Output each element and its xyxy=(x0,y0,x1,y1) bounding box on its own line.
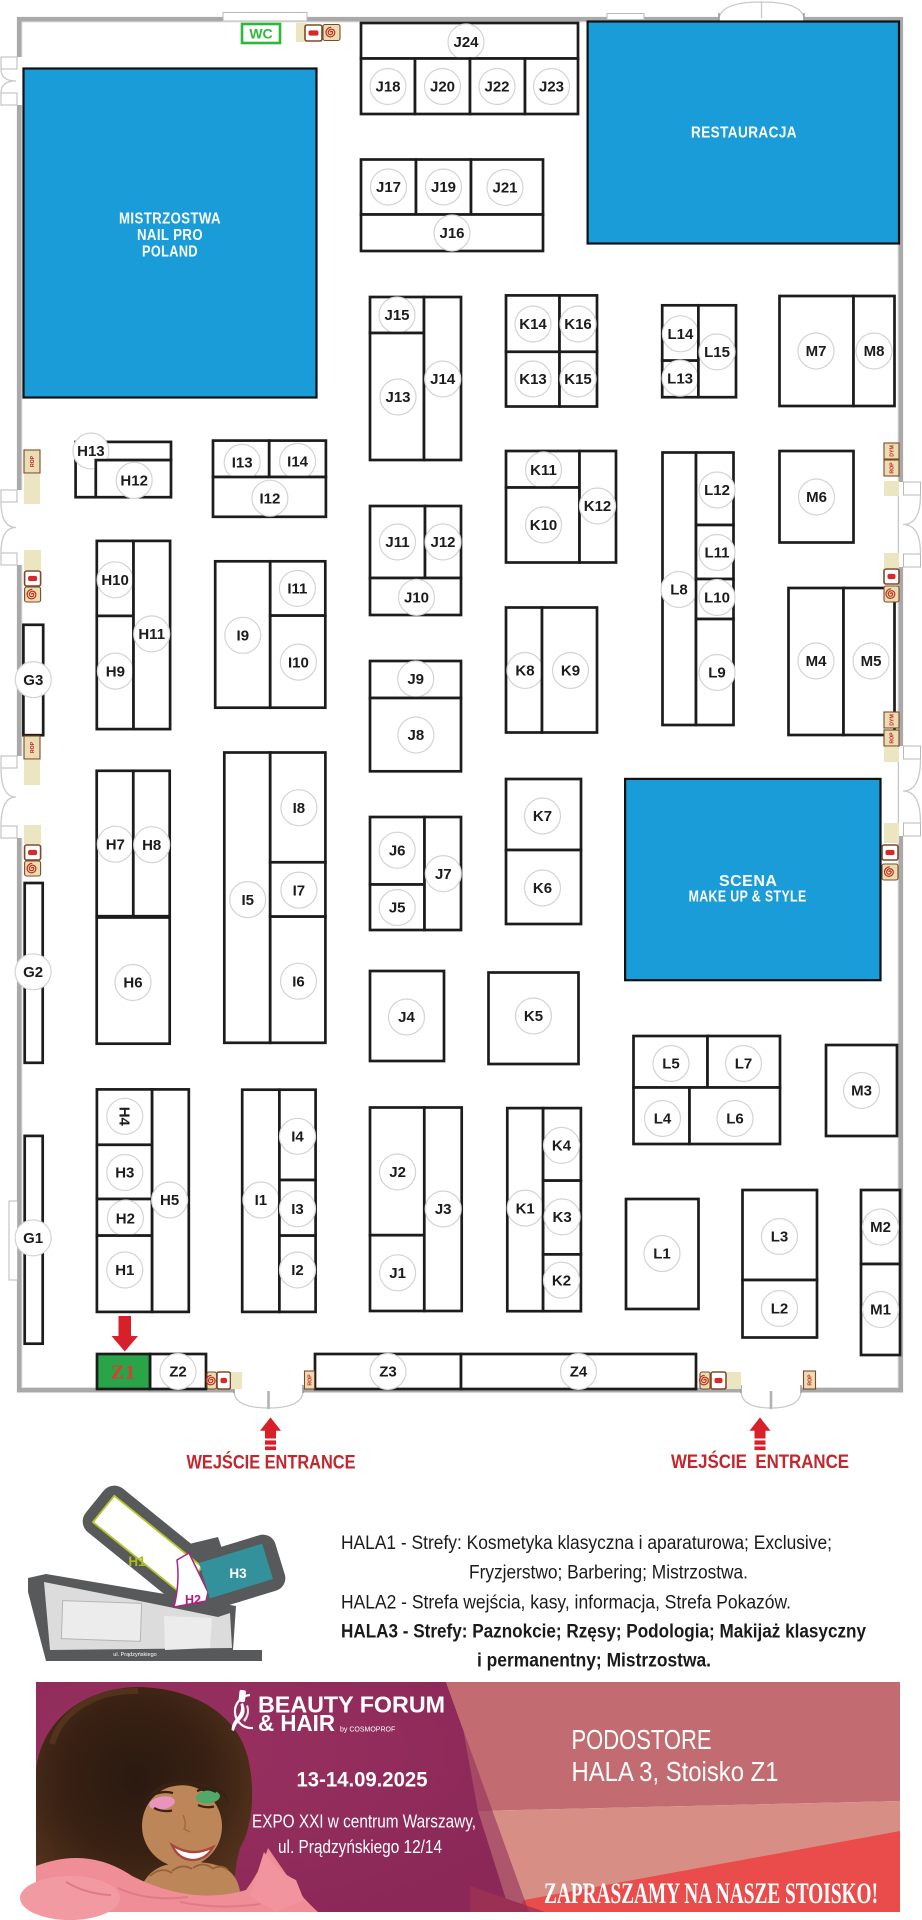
svg-text:H8: H8 xyxy=(142,837,161,854)
svg-text:K16: K16 xyxy=(564,316,592,333)
svg-text:K12: K12 xyxy=(584,498,612,515)
svg-text:HALA1 - Strefy: Kosmetyka klas: HALA1 - Strefy: Kosmetyka klasyczna i ap… xyxy=(341,1533,832,1554)
svg-text:I7: I7 xyxy=(293,882,306,899)
svg-text:HALA3 - Strefy: Paznokcie; Rzę: HALA3 - Strefy: Paznokcie; Rzęsy; Podolo… xyxy=(341,1622,866,1643)
svg-text:J13: J13 xyxy=(385,389,410,406)
svg-text:Z4: Z4 xyxy=(570,1364,588,1381)
svg-text:H6: H6 xyxy=(123,975,142,992)
svg-text:I3: I3 xyxy=(291,1201,304,1218)
svg-text:G3: G3 xyxy=(23,672,43,689)
svg-text:H1: H1 xyxy=(128,1554,146,1569)
svg-text:J15: J15 xyxy=(384,307,409,324)
svg-text:H9: H9 xyxy=(106,663,125,680)
svg-text:M4: M4 xyxy=(806,653,827,670)
svg-text:J24: J24 xyxy=(453,34,479,51)
svg-text:ZAPRASZAMY NA NASZE STOISKO!: ZAPRASZAMY NA NASZE STOISKO! xyxy=(544,1877,878,1910)
svg-text:Z2: Z2 xyxy=(169,1364,187,1381)
svg-text:HALA 3, Stoisko Z1: HALA 3, Stoisko Z1 xyxy=(572,1756,779,1787)
svg-text:ul. Prądzyńskiego: ul. Prądzyńskiego xyxy=(113,1652,156,1658)
svg-text:L4: L4 xyxy=(654,1111,672,1128)
svg-text:J5: J5 xyxy=(389,900,406,917)
svg-text:H11: H11 xyxy=(138,626,165,643)
svg-text:K14: K14 xyxy=(519,316,547,333)
svg-text:J3: J3 xyxy=(435,1201,452,1218)
svg-text:SCENA: SCENA xyxy=(719,873,778,890)
svg-text:I13: I13 xyxy=(232,455,253,472)
svg-text:13-14.09.2025: 13-14.09.2025 xyxy=(297,1769,428,1792)
svg-text:M3: M3 xyxy=(851,1083,872,1100)
svg-text:J17: J17 xyxy=(376,179,401,196)
svg-text:ROP: ROP xyxy=(30,455,36,467)
svg-text:L12: L12 xyxy=(704,482,730,499)
svg-text:J2: J2 xyxy=(389,1164,406,1181)
svg-text:L8: L8 xyxy=(670,582,688,599)
svg-text:WEJŚCIE ENTRANCE: WEJŚCIE ENTRANCE xyxy=(671,1451,849,1473)
svg-text:Fryzjerstwo; Barbering; Mistrz: Fryzjerstwo; Barbering; Mistrzostwa. xyxy=(469,1563,748,1584)
svg-text:K8: K8 xyxy=(515,663,534,680)
svg-text:K5: K5 xyxy=(524,1008,543,1025)
svg-text:J4: J4 xyxy=(398,1009,415,1026)
svg-text:L6: L6 xyxy=(726,1111,744,1128)
svg-text:Z1: Z1 xyxy=(111,1362,136,1384)
svg-text:H13: H13 xyxy=(77,443,105,460)
svg-text:H1: H1 xyxy=(115,1262,134,1279)
svg-text:M7: M7 xyxy=(806,343,827,360)
svg-text:K7: K7 xyxy=(533,808,552,825)
svg-text:G1: G1 xyxy=(23,1230,43,1247)
svg-text:J1: J1 xyxy=(389,1265,406,1282)
svg-text:K9: K9 xyxy=(561,663,580,680)
svg-text:L3: L3 xyxy=(771,1229,789,1246)
svg-text:L2: L2 xyxy=(771,1301,789,1318)
svg-text:H2: H2 xyxy=(185,1593,201,1607)
svg-text:H5: H5 xyxy=(160,1192,179,1209)
svg-text:J23: J23 xyxy=(539,79,564,96)
svg-text:I12: I12 xyxy=(259,490,280,507)
svg-text:J7: J7 xyxy=(435,866,452,883)
svg-text:MAKE UP & STYLE: MAKE UP & STYLE xyxy=(689,889,807,906)
svg-text:J8: J8 xyxy=(408,727,425,744)
svg-text:I5: I5 xyxy=(241,892,254,909)
svg-text:H2: H2 xyxy=(116,1210,135,1227)
svg-text:I11: I11 xyxy=(287,581,307,598)
svg-text:I4: I4 xyxy=(291,1129,304,1146)
svg-text:G2: G2 xyxy=(23,964,43,981)
svg-text:J11: J11 xyxy=(385,534,409,551)
svg-text:K11: K11 xyxy=(530,462,557,479)
svg-text:MISTRZOSTWA: MISTRZOSTWA xyxy=(119,211,221,228)
svg-text:M5: M5 xyxy=(861,653,882,670)
svg-text:M2: M2 xyxy=(870,1219,891,1236)
svg-text:K10: K10 xyxy=(530,517,558,534)
svg-text:L1: L1 xyxy=(653,1246,671,1263)
svg-text:L15: L15 xyxy=(704,344,730,361)
svg-text:ul. Prądzyńskiego 12/14: ul. Prądzyńskiego 12/14 xyxy=(278,1836,442,1857)
svg-text:J9: J9 xyxy=(407,671,424,688)
svg-text:J21: J21 xyxy=(492,180,517,197)
svg-text:H12: H12 xyxy=(120,473,148,490)
svg-text:I10: I10 xyxy=(288,654,309,671)
svg-text:M8: M8 xyxy=(864,343,885,360)
svg-text:J16: J16 xyxy=(439,225,464,242)
svg-text:DYM: DYM xyxy=(890,445,896,457)
svg-text:K4: K4 xyxy=(552,1138,572,1155)
svg-text:I14: I14 xyxy=(287,454,309,471)
svg-text:i permanentny; Mistrzostwa.: i permanentny; Mistrzostwa. xyxy=(477,1651,711,1672)
svg-text:H4: H4 xyxy=(116,1107,133,1127)
svg-text:EXPO XXI w centrum Warszawy,: EXPO XXI w centrum Warszawy, xyxy=(252,1811,476,1832)
svg-text:J20: J20 xyxy=(430,79,455,96)
svg-text:ROP: ROP xyxy=(890,462,896,474)
svg-text:L9: L9 xyxy=(708,665,726,682)
svg-text:L7: L7 xyxy=(735,1056,753,1073)
svg-text:ROP: ROP xyxy=(308,1374,314,1386)
svg-text:DYM: DYM xyxy=(890,714,896,726)
svg-text:I8: I8 xyxy=(293,800,306,817)
svg-text:K15: K15 xyxy=(564,371,592,388)
svg-text:ROP: ROP xyxy=(890,732,896,744)
svg-text:J10: J10 xyxy=(404,590,429,607)
svg-text:K13: K13 xyxy=(519,371,547,388)
svg-text:WEJŚCIE ENTRANCE: WEJŚCIE ENTRANCE xyxy=(187,1452,356,1474)
svg-text:I1: I1 xyxy=(255,1192,268,1209)
svg-text:PODOSTORE: PODOSTORE xyxy=(572,1724,712,1755)
svg-text:HALA2 - Strefa wejścia, kasy,: HALA2 - Strefa wejścia, kasy, informacja… xyxy=(341,1592,791,1613)
svg-text:H3: H3 xyxy=(229,1566,247,1581)
svg-text:J14: J14 xyxy=(430,371,456,388)
svg-text:ROP: ROP xyxy=(808,1374,814,1386)
svg-text:M1: M1 xyxy=(870,1302,891,1319)
svg-text:WC: WC xyxy=(249,26,272,42)
svg-text:J12: J12 xyxy=(430,534,455,551)
svg-text:J18: J18 xyxy=(375,79,400,96)
svg-text:K2: K2 xyxy=(552,1272,571,1289)
svg-text:K6: K6 xyxy=(533,880,552,897)
svg-text:I9: I9 xyxy=(237,628,250,645)
svg-text:K1: K1 xyxy=(516,1200,535,1217)
svg-text:K3: K3 xyxy=(553,1209,572,1226)
svg-text:L10: L10 xyxy=(704,590,730,607)
svg-text:I2: I2 xyxy=(291,1262,304,1279)
svg-text:H3: H3 xyxy=(115,1165,134,1182)
svg-text:J6: J6 xyxy=(389,842,406,859)
svg-text:J19: J19 xyxy=(431,179,456,196)
svg-text:H7: H7 xyxy=(106,836,125,853)
svg-text:L13: L13 xyxy=(667,370,693,387)
svg-text:H10: H10 xyxy=(101,572,129,589)
svg-text:ROP: ROP xyxy=(30,741,36,753)
svg-text:by COSMOPROF: by COSMOPROF xyxy=(340,1727,395,1734)
svg-text:L5: L5 xyxy=(662,1056,680,1073)
svg-text:RESTAURACJA: RESTAURACJA xyxy=(691,125,797,142)
svg-text:M6: M6 xyxy=(806,489,827,506)
svg-text:& HAIR: & HAIR xyxy=(258,1710,335,1736)
svg-text:J22: J22 xyxy=(484,79,509,96)
svg-text:NAIL PRO: NAIL PRO xyxy=(137,227,203,244)
svg-text:I6: I6 xyxy=(292,973,305,990)
svg-text:L11: L11 xyxy=(704,545,729,562)
svg-text:L14: L14 xyxy=(667,326,694,343)
svg-text:Z3: Z3 xyxy=(379,1364,397,1381)
svg-text:POLAND: POLAND xyxy=(142,244,198,261)
